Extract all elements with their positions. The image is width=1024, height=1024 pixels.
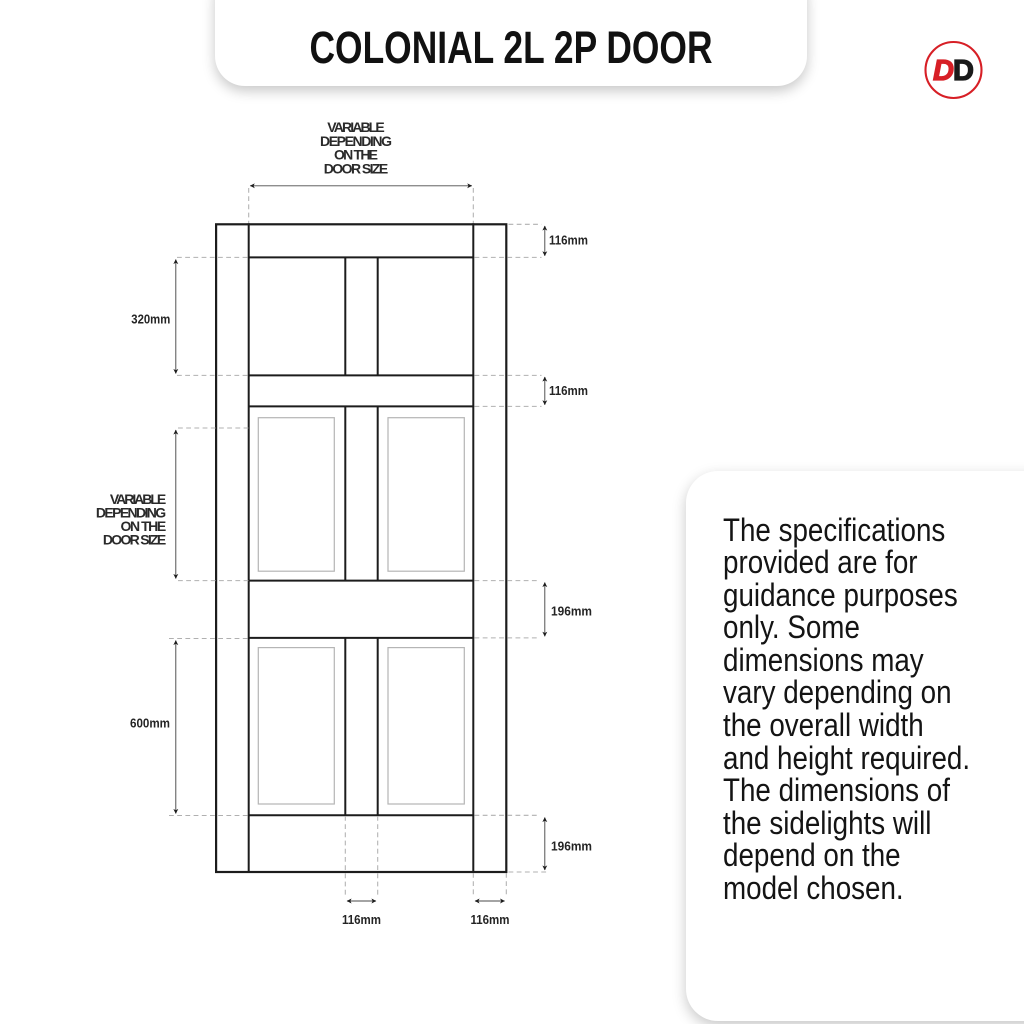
svg-text:116mm: 116mm — [549, 384, 588, 398]
svg-text:600mm: 600mm — [130, 717, 170, 731]
svg-text:D: D — [933, 55, 954, 87]
svg-text:DOOR SIZE: DOOR SIZE — [324, 160, 389, 176]
svg-text:320mm: 320mm — [131, 313, 170, 327]
svg-text:116mm: 116mm — [471, 913, 510, 927]
svg-text:116mm: 116mm — [549, 234, 588, 248]
svg-text:196mm: 196mm — [551, 605, 592, 619]
svg-text:196mm: 196mm — [551, 840, 592, 854]
svg-text:DOOR SIZE: DOOR SIZE — [103, 532, 166, 548]
svg-text:COLONIAL 2L 2P DOOR: COLONIAL 2L 2P DOOR — [310, 22, 713, 73]
svg-text:D: D — [953, 55, 974, 87]
svg-text:116mm: 116mm — [342, 913, 381, 927]
